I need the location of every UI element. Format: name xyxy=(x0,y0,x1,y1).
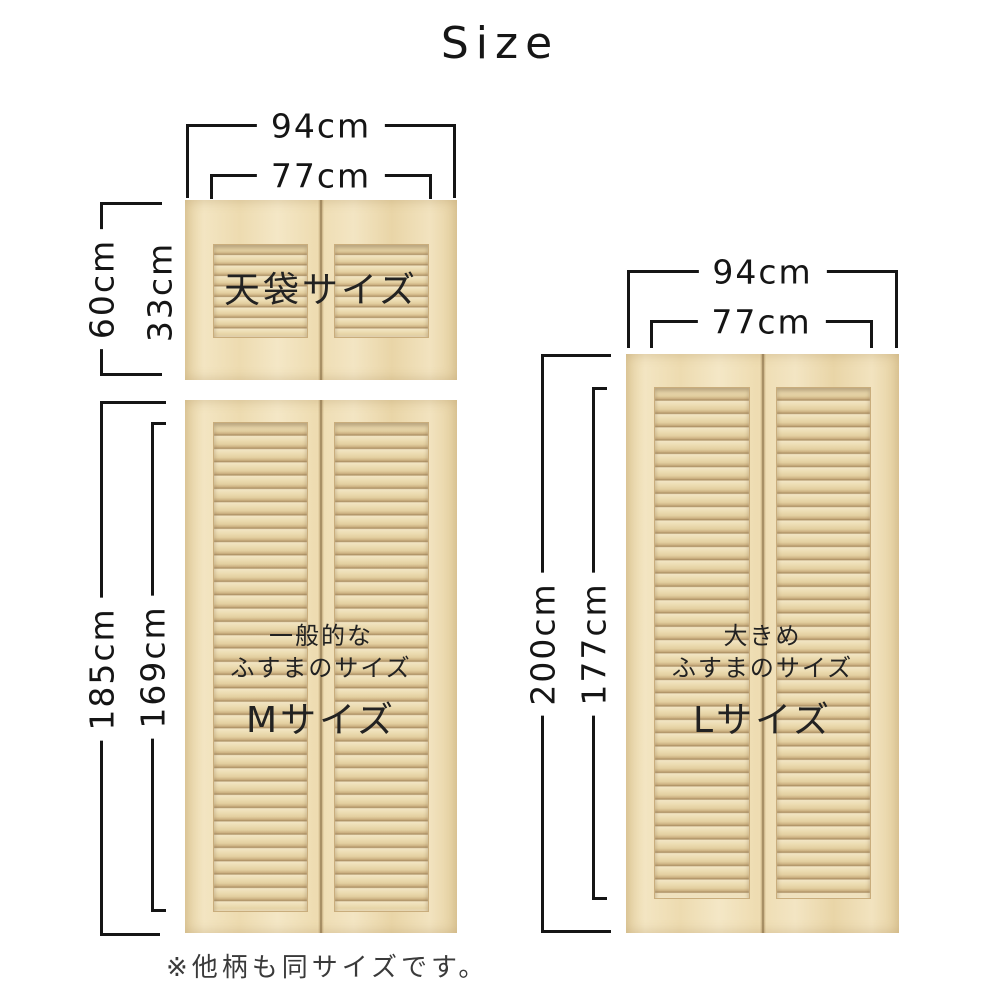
dim-label: 77cm xyxy=(697,303,825,340)
dim-label: 94cm xyxy=(257,107,385,144)
dim-m-inner-height: 169cm xyxy=(151,422,154,912)
dim-l-outer-height: 200cm xyxy=(541,354,544,933)
dim-l-inner-width: 77cm xyxy=(650,320,873,323)
dim-label: 177cm xyxy=(573,572,614,715)
dimension-tick xyxy=(151,422,166,425)
dim-label: 200cm xyxy=(522,572,563,715)
dimension-tick xyxy=(100,933,160,936)
dimension-end xyxy=(870,320,873,348)
dimension-tick xyxy=(100,202,162,205)
dim-label: 94cm xyxy=(698,253,826,290)
dim-l-outer-width: 94cm xyxy=(627,270,898,273)
door-desc-line1: 一般的な xyxy=(269,624,373,648)
dimension-tick xyxy=(100,373,162,376)
door-photo-tenbukuro: 天袋サイズ xyxy=(185,200,457,380)
dim-label: 185cm xyxy=(81,597,122,740)
door-desc-line1: 大きめ xyxy=(724,624,802,648)
dim-label: 169cm xyxy=(132,595,173,738)
dim-m-outer-height: 185cm xyxy=(100,401,103,936)
door-desc-line2: ふすまのサイズ xyxy=(672,656,853,680)
dimension-end xyxy=(429,174,432,199)
size-diagram: Size 天袋サイズ 一般的な ふすまのサイズ Mサイズ 大きめ xyxy=(0,0,1000,1000)
door-size-label: Mサイズ xyxy=(246,703,396,739)
door-desc-line2: ふすまのサイズ xyxy=(230,656,411,680)
dim-tenbukuro-inner-width: 77cm xyxy=(210,174,432,177)
page-title: Size xyxy=(441,20,559,68)
dimension-tick xyxy=(151,909,166,912)
dimension-tick xyxy=(541,930,611,933)
dim-label: 33cm xyxy=(139,231,180,351)
dimension-end xyxy=(186,124,189,198)
door-photo-m-size: 一般的な ふすまのサイズ Mサイズ xyxy=(185,400,457,933)
dimension-end xyxy=(210,174,213,199)
dim-tenbukuro-outer-width: 94cm xyxy=(186,124,456,127)
dimension-end xyxy=(895,270,898,348)
dimension-tick xyxy=(100,401,166,404)
dim-tenbukuro-outer-height: 60cm xyxy=(100,202,103,376)
door-size-label: Lサイズ xyxy=(693,703,832,739)
dim-label: 77cm xyxy=(257,157,385,194)
footer-note: ※他柄も同サイズです。 xyxy=(166,947,488,984)
dim-tenbukuro-inner-height: 33cm xyxy=(158,245,161,338)
door-photo-l-size: 大きめ ふすまのサイズ Lサイズ xyxy=(626,354,899,933)
dim-label: 60cm xyxy=(81,229,122,349)
door-name-label: 天袋サイズ xyxy=(224,273,418,309)
dimension-tick xyxy=(592,387,607,390)
dim-l-inner-height: 177cm xyxy=(592,387,595,900)
dimension-end xyxy=(453,124,456,198)
dimension-tick xyxy=(592,897,607,900)
dimension-end xyxy=(650,320,653,348)
dimension-end xyxy=(627,270,630,348)
dimension-tick xyxy=(541,354,611,357)
